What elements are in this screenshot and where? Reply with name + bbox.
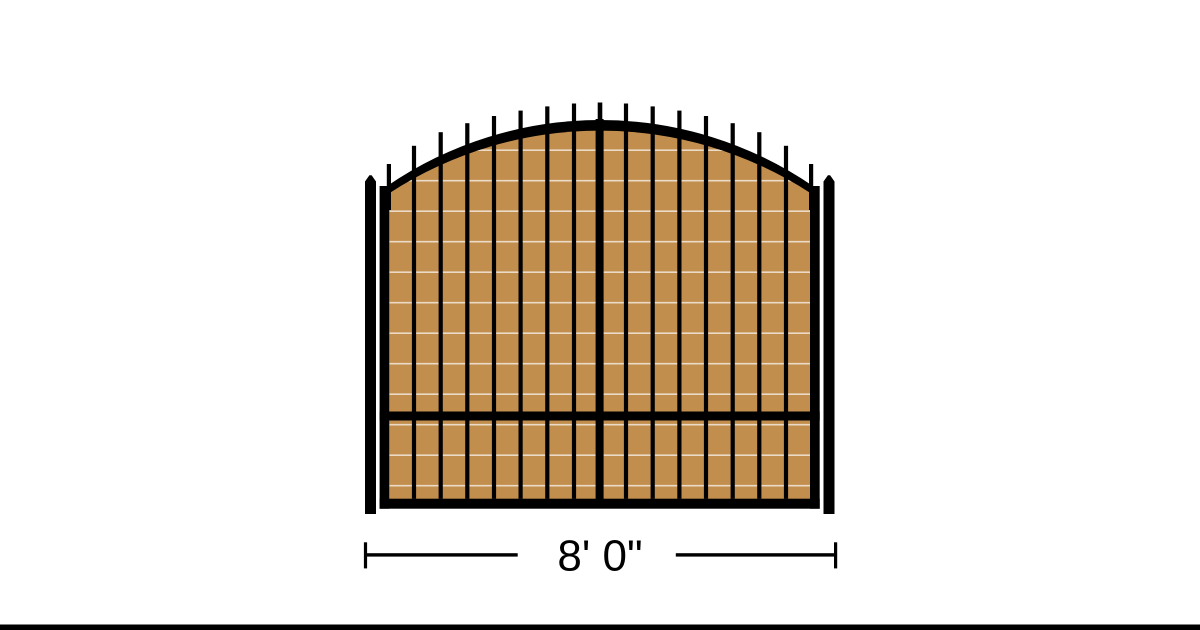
svg-text:8' 0": 8' 0" — [557, 532, 642, 581]
